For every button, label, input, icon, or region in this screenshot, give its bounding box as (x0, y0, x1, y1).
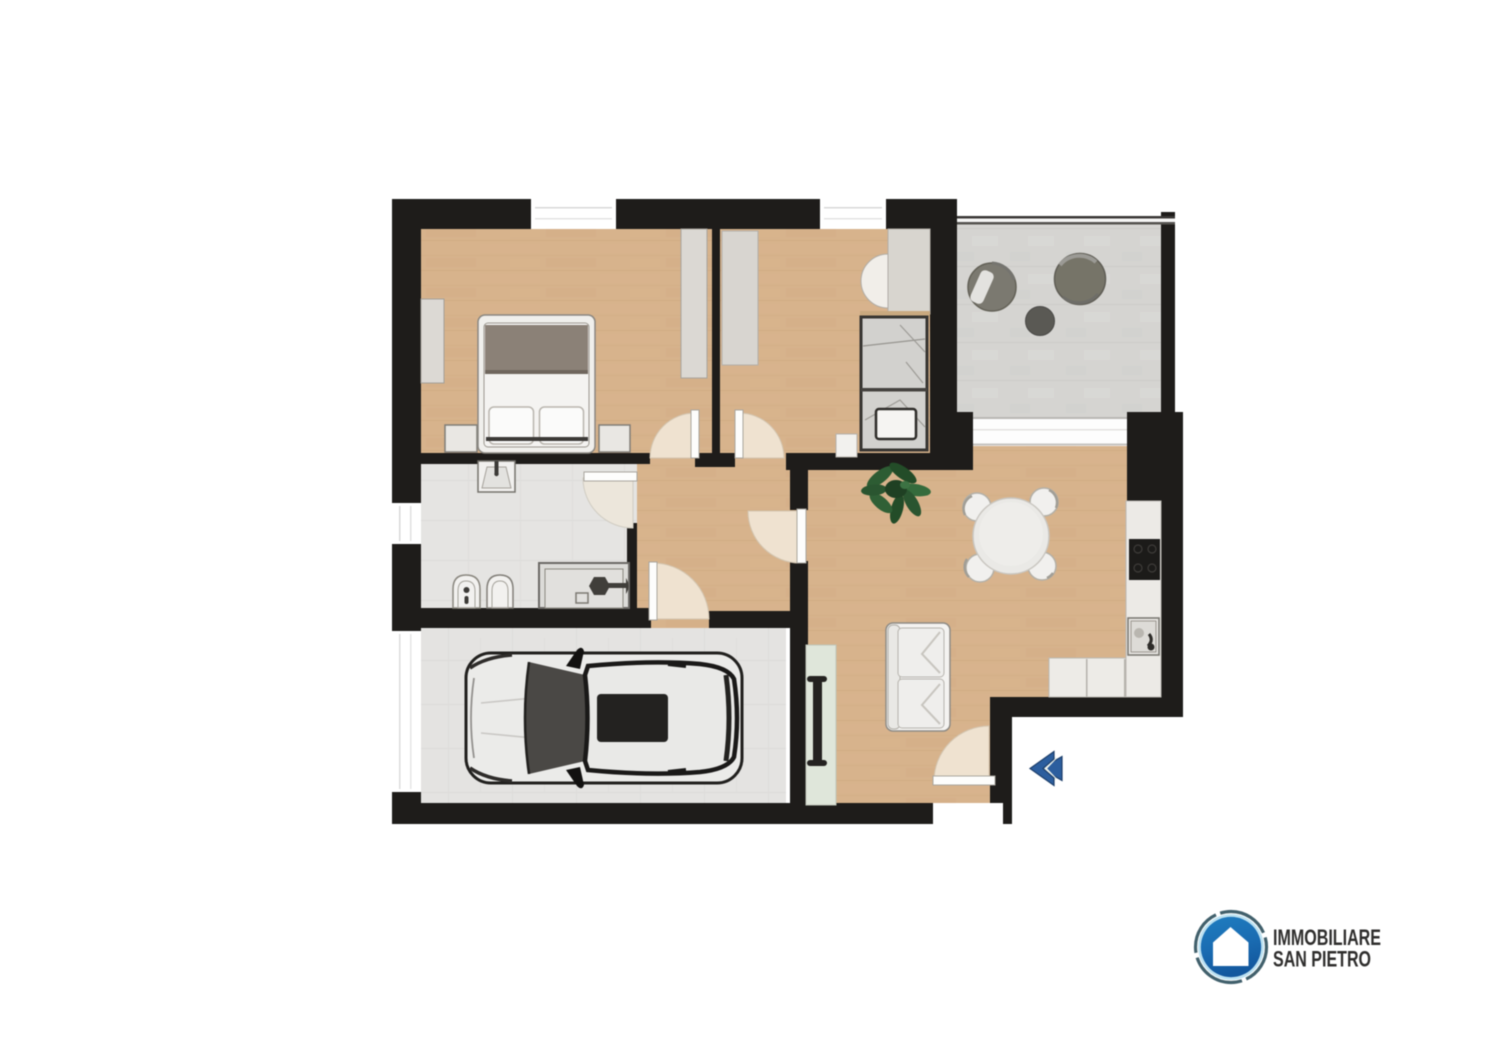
svg-text:SAN PIETRO: SAN PIETRO (1273, 947, 1371, 972)
